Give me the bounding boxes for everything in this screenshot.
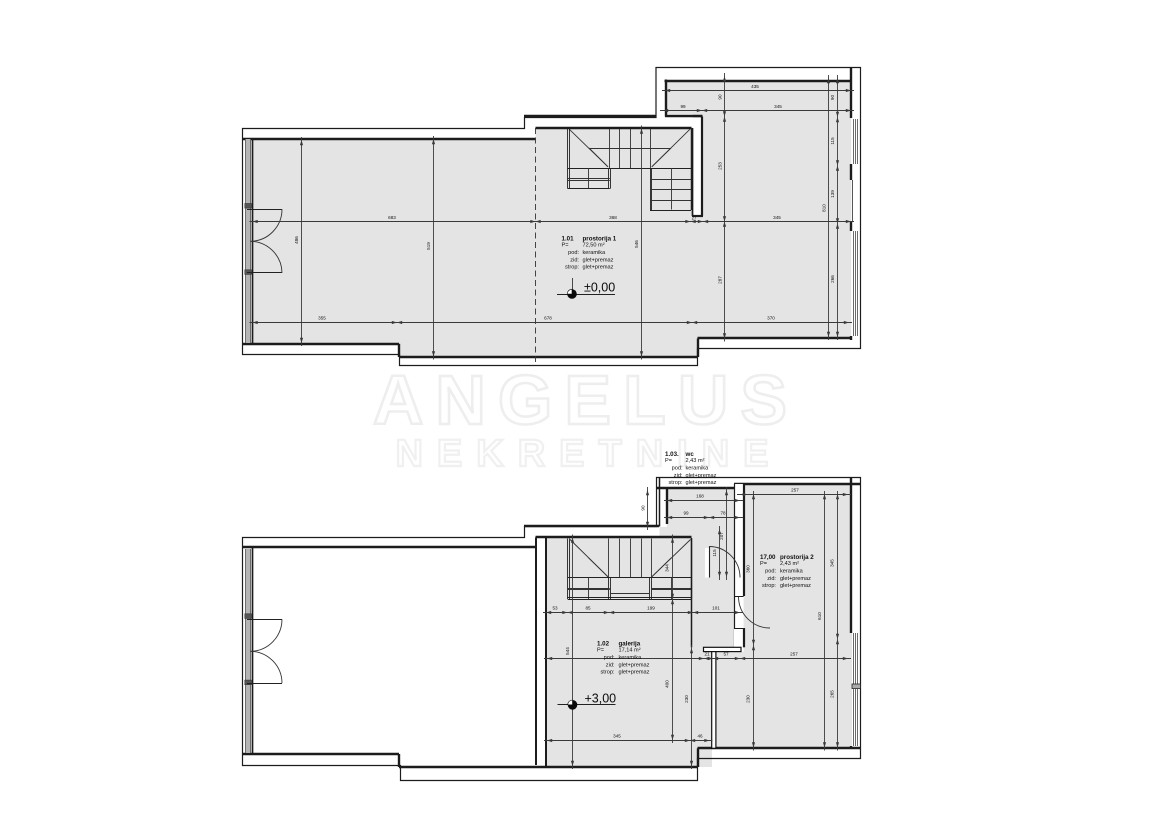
svg-text:keramika: keramika — [619, 655, 643, 661]
svg-text:57: 57 — [723, 652, 729, 657]
svg-text:P=: P= — [665, 458, 672, 464]
svg-text:+3,00: +3,00 — [585, 691, 617, 705]
svg-text:344: 344 — [665, 564, 670, 572]
svg-text:199: 199 — [647, 606, 655, 611]
svg-text:pod:: pod: — [568, 250, 579, 256]
svg-text:P=: P= — [760, 561, 767, 567]
svg-text:glet+premaz: glet+premaz — [583, 257, 614, 263]
svg-text:546: 546 — [634, 240, 639, 248]
svg-text:139: 139 — [830, 190, 835, 198]
svg-text:strop:: strop: — [762, 583, 776, 589]
svg-text:ANGELUS: ANGELUS — [373, 361, 799, 439]
svg-text:90: 90 — [830, 95, 835, 101]
svg-text:NEKRETNINE: NEKRETNINE — [395, 433, 782, 475]
svg-text:±0,00: ±0,00 — [584, 281, 615, 295]
svg-text:355: 355 — [318, 316, 326, 321]
svg-text:266: 266 — [830, 275, 835, 283]
svg-text:683: 683 — [388, 215, 396, 220]
svg-text:78: 78 — [720, 511, 726, 516]
svg-text:strop:: strop: — [669, 480, 683, 486]
svg-text:zid:: zid: — [674, 473, 683, 479]
svg-text:370: 370 — [767, 316, 775, 321]
svg-text:P=: P= — [562, 242, 569, 248]
svg-text:glet+premaz: glet+premaz — [619, 670, 650, 676]
svg-text:253: 253 — [718, 162, 723, 170]
svg-text:72,50 m²: 72,50 m² — [583, 242, 605, 248]
svg-text:keramika: keramika — [686, 465, 710, 471]
svg-text:2,43 m²: 2,43 m² — [686, 458, 705, 464]
svg-text:keramika: keramika — [583, 250, 607, 256]
svg-text:46: 46 — [697, 734, 703, 739]
svg-text:544: 544 — [565, 647, 570, 655]
svg-text:53: 53 — [552, 606, 558, 611]
svg-text:glet+premaz: glet+premaz — [780, 576, 811, 582]
svg-text:519: 519 — [426, 242, 431, 250]
svg-text:99: 99 — [683, 511, 689, 516]
svg-text:zid:: zid: — [767, 576, 776, 582]
svg-text:360: 360 — [746, 565, 751, 573]
svg-text:90: 90 — [641, 505, 646, 511]
svg-text:345: 345 — [774, 104, 782, 109]
svg-text:99: 99 — [680, 104, 686, 109]
svg-text:zid:: zid: — [570, 257, 579, 263]
svg-text:glet+premaz: glet+premaz — [619, 662, 650, 668]
svg-text:101: 101 — [712, 606, 720, 611]
svg-text:486: 486 — [294, 236, 299, 244]
svg-text:P=: P= — [597, 647, 604, 653]
svg-text:345: 345 — [613, 734, 621, 739]
svg-text:230: 230 — [684, 695, 689, 703]
svg-text:400: 400 — [665, 680, 670, 688]
svg-text:17,14 m²: 17,14 m² — [619, 647, 641, 653]
svg-text:strop:: strop: — [601, 670, 615, 676]
svg-text:zid:: zid: — [606, 662, 615, 668]
svg-text:pod:: pod: — [672, 465, 683, 471]
svg-text:345: 345 — [773, 215, 781, 220]
svg-text:glet+premaz: glet+premaz — [780, 583, 811, 589]
svg-text:810: 810 — [822, 204, 827, 212]
svg-text:pod:: pod: — [604, 655, 615, 661]
svg-text:230: 230 — [746, 695, 751, 703]
svg-text:115: 115 — [830, 137, 835, 145]
svg-text:90: 90 — [718, 94, 723, 100]
svg-text:257: 257 — [790, 652, 798, 657]
svg-text:pod:: pod: — [765, 568, 776, 574]
svg-text:265: 265 — [830, 690, 835, 698]
svg-text:21: 21 — [704, 652, 710, 657]
svg-text:257: 257 — [791, 488, 799, 493]
svg-text:glet+premaz: glet+premaz — [686, 473, 717, 479]
svg-text:keramika: keramika — [780, 568, 804, 574]
svg-text:115: 115 — [712, 549, 717, 557]
svg-text:678: 678 — [544, 316, 552, 321]
svg-text:168: 168 — [696, 494, 704, 499]
svg-text:610: 610 — [817, 612, 822, 620]
svg-text:strop:: strop: — [565, 265, 579, 271]
svg-text:glet+premaz: glet+premaz — [583, 265, 614, 271]
svg-text:435: 435 — [751, 84, 759, 89]
svg-text:85: 85 — [585, 606, 591, 611]
svg-text:287: 287 — [718, 276, 723, 284]
svg-text:2,43 m²: 2,43 m² — [780, 561, 799, 567]
svg-text:368: 368 — [609, 215, 617, 220]
svg-text:glet+premaz: glet+premaz — [686, 480, 717, 486]
svg-text:27: 27 — [692, 216, 697, 221]
svg-text:345: 345 — [830, 559, 835, 567]
